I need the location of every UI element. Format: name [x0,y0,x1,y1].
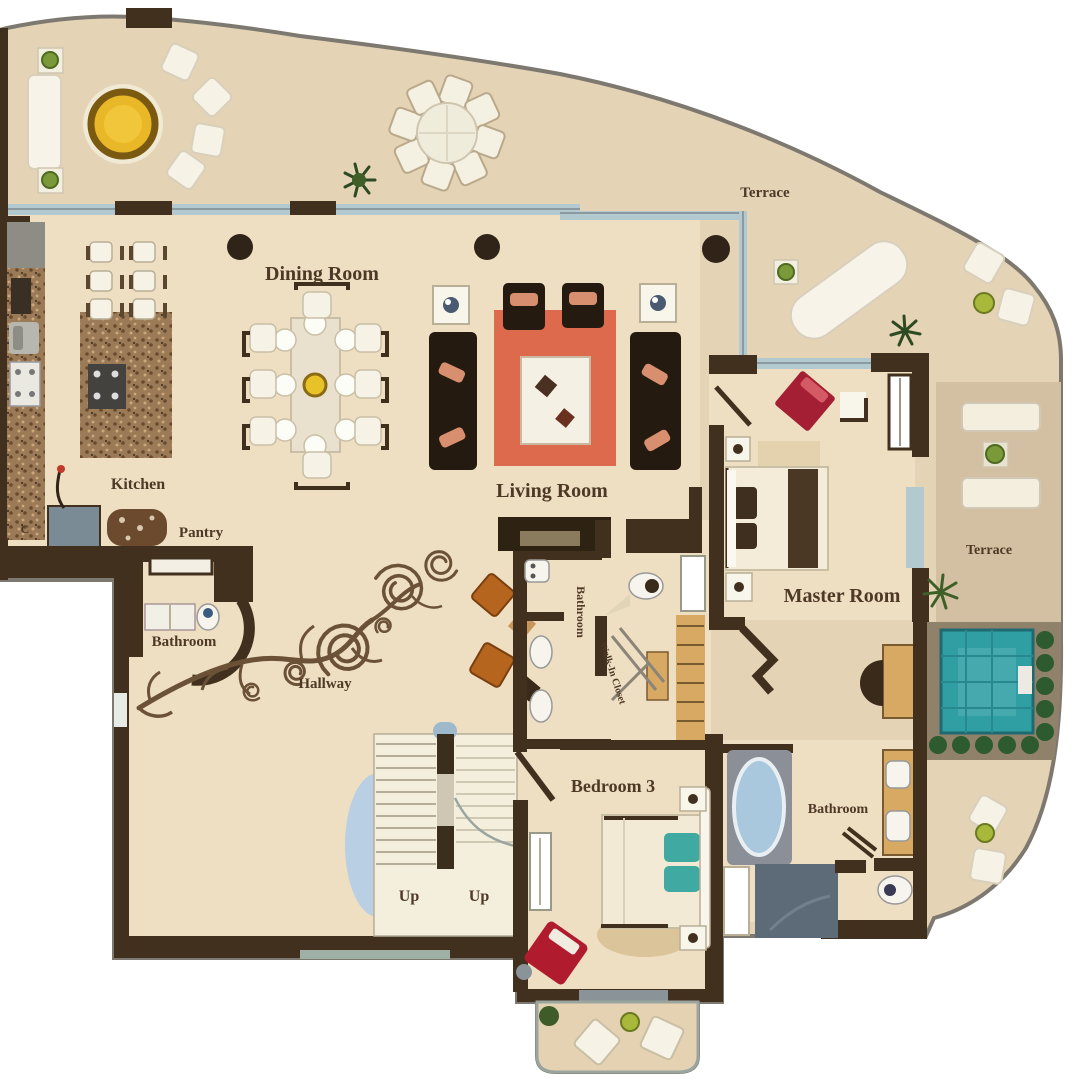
svg-text:Pantry: Pantry [179,525,224,541]
svg-text:Bathroom: Bathroom [574,586,588,638]
svg-text:Terrace: Terrace [966,543,1012,558]
svg-text:Bathroom: Bathroom [152,634,217,650]
svg-text:C: C [21,522,30,536]
svg-text:Bathroom: Bathroom [808,802,869,817]
svg-text:Master Room: Master Room [784,585,901,607]
svg-text:Hallway: Hallway [298,676,352,692]
svg-text:Kitchen: Kitchen [111,476,165,493]
svg-text:Up: Up [399,888,420,905]
svg-text:Up: Up [469,888,490,905]
svg-text:Terrace: Terrace [740,185,790,201]
svg-text:Living Room: Living Room [496,480,608,502]
svg-text:Bedroom 3: Bedroom 3 [571,776,655,796]
svg-text:Dining Room: Dining Room [265,263,379,285]
